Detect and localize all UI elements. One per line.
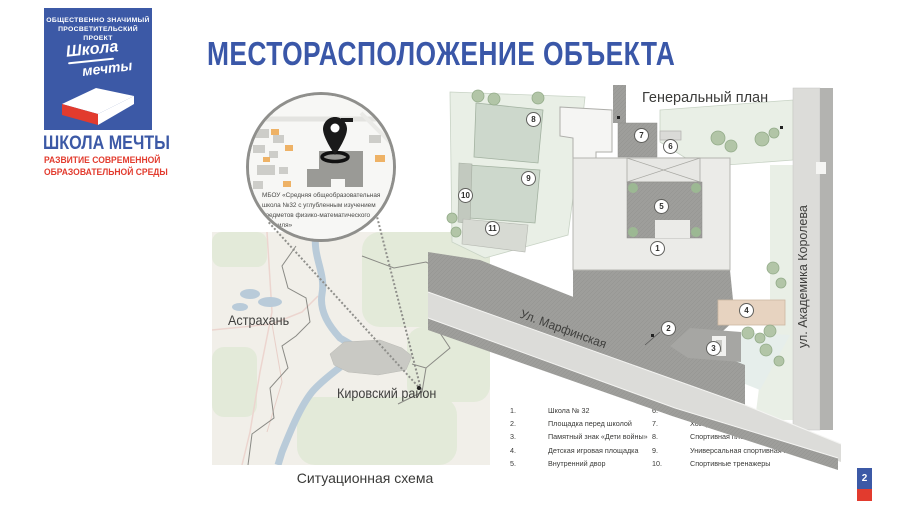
situation-map (212, 232, 490, 465)
site-green-east (755, 165, 793, 420)
plan-marker-6: 6 (663, 139, 678, 154)
leader-endpoint-dot (417, 386, 421, 390)
site-green-northeast (660, 100, 793, 167)
plan-marker-11: 11 (485, 221, 500, 236)
brand-subtitle: РАЗВИТИЕ СОВРЕМЕННОЙ ОБРАЗОВАТЕЛЬНОЙ СРЕ… (44, 155, 168, 178)
plan-marker-2: 2 (661, 321, 676, 336)
city-label: Астрахань (228, 312, 289, 328)
legend-item-3: 3.Памятный знак «Дети войны» (510, 432, 650, 445)
building-outline (560, 107, 612, 166)
street-koroleva-sidewalk (820, 88, 833, 430)
legend-item-6: 6.Хоз. постройка (652, 406, 812, 419)
plan-marker-3: 3 (706, 341, 721, 356)
callout-text: МБОУ «Средняя общеобразовательная школа … (262, 191, 384, 231)
logo-building-icon (58, 84, 138, 126)
plan-marker-1: 1 (650, 241, 665, 256)
brand-project-line1: ОБЩЕСТВЕННО ЗНАЧИМЫЙ (44, 16, 152, 25)
plan-marker-5: 5 (654, 199, 669, 214)
plan-marker-7: 7 (634, 128, 649, 143)
legend-item-4: 4.Детская игровая площадка (510, 446, 650, 459)
brand-title: ШКОЛА МЕЧТЫ (43, 133, 141, 155)
plan-marker-4: 4 (739, 303, 754, 318)
legend-right-column: 6.Хоз. постройка 7.Хоз. двор 8.Спортивна… (652, 406, 812, 472)
legend-item-9: 9.Универсальная спортивная площадка (652, 446, 812, 459)
page-number-badge: 2 (857, 468, 872, 501)
street-label-koroleva: ул. Академика Королева (796, 178, 810, 348)
street-label-marfinskaya: Ул. Марфинская (518, 307, 608, 351)
legend-item-1: 1.Школа № 32 (510, 406, 650, 419)
legend-item-2: 2.Площадка перед школой (510, 419, 650, 432)
plan-marker-9: 9 (521, 171, 536, 186)
plan-marker-10: 10 (458, 188, 473, 203)
brand-logo: ОБЩЕСТВЕННО ЗНАЧИМЫЙ ПРОСВЕТИТЕЛЬСКИЙ ПР… (44, 8, 152, 130)
plan-title: Генеральный план (642, 90, 762, 106)
page-title: МЕСТОРАСПОЛОЖЕНИЕ ОБЪЕКТА (207, 35, 675, 73)
legend-item-10: 10.Спортивные тренажеры (652, 459, 812, 472)
green-triangle-southeast (700, 330, 790, 390)
map-caption: Ситуационная схема (280, 470, 450, 486)
legend-left-column: 1.Школа № 32 2.Площадка перед школой 3.П… (510, 406, 650, 472)
plan-marker-8: 8 (526, 112, 541, 127)
legend-item-8: 8.Спортивная площадка (652, 432, 812, 445)
slide: ОБЩЕСТВЕННО ЗНАЧИМЫЙ ПРОСВЕТИТЕЛЬСКИЙ ПР… (0, 0, 900, 506)
legend-item-5: 5.Внутренний двор (510, 459, 650, 472)
legend-item-7: 7.Хоз. двор (652, 419, 812, 432)
location-callout: МБОУ «Средняя общеобразовательная школа … (246, 92, 396, 242)
brand-subtitle-line1: РАЗВИТИЕ СОВРЕМЕННОЙ (44, 155, 168, 167)
page-badge-red-bar (857, 489, 872, 501)
brand-subtitle-line2: ОБРАЗОВАТЕЛЬНОЙ СРЕДЫ (44, 167, 168, 179)
page-number: 2 (857, 468, 872, 489)
